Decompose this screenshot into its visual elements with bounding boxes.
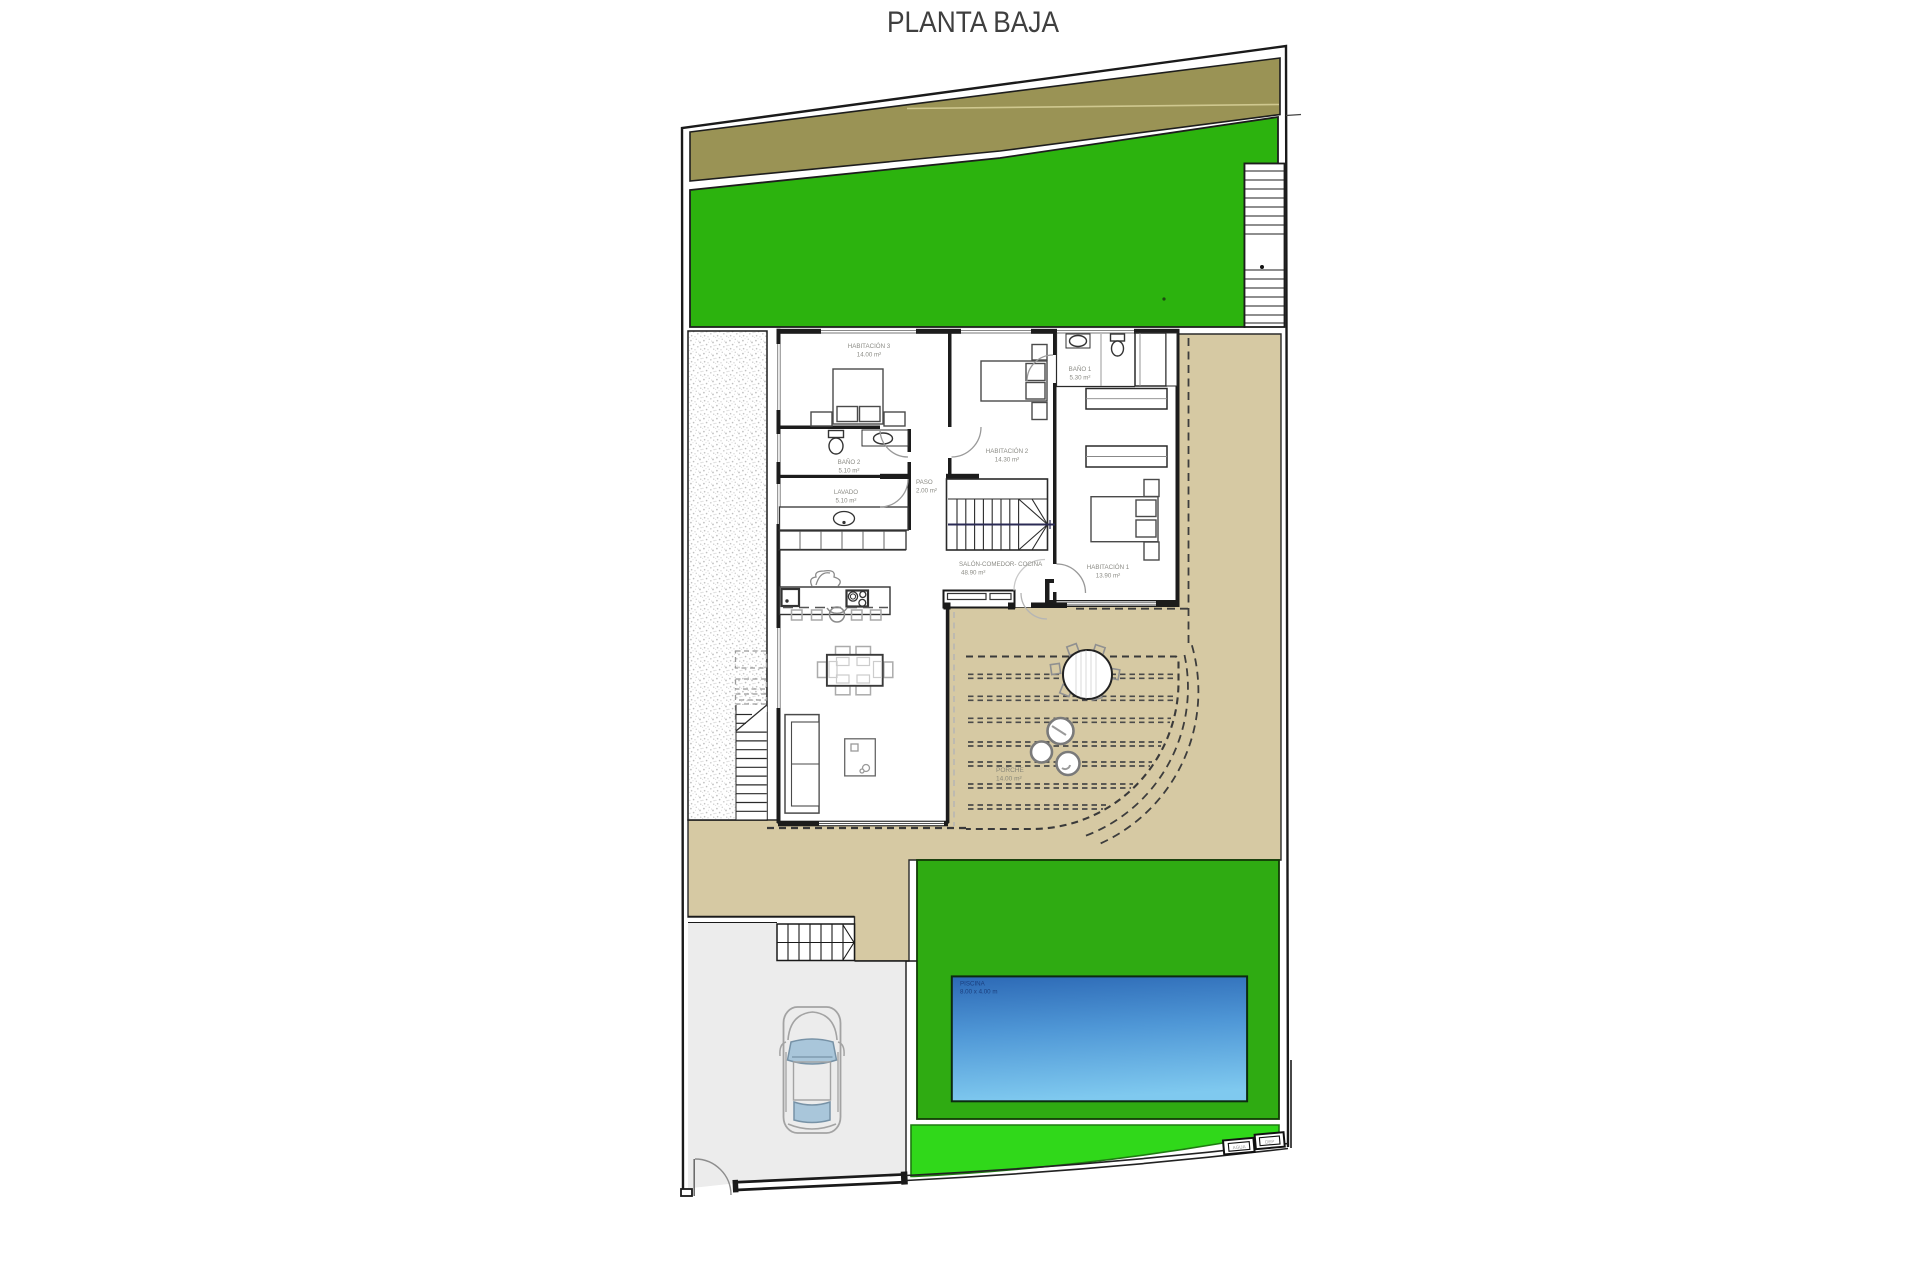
svg-text:2.00 m²: 2.00 m² (916, 488, 937, 495)
svg-text:PLANTA BAJA: PLANTA BAJA (887, 6, 1059, 39)
svg-text:5.10 m²: 5.10 m² (839, 468, 860, 475)
svg-text:DEP: DEP (1265, 1139, 1275, 1145)
svg-text:HABITACIÓN 2: HABITACIÓN 2 (986, 448, 1029, 455)
svg-text:48.90 m²: 48.90 m² (961, 570, 985, 577)
svg-text:BAÑO 2: BAÑO 2 (838, 459, 861, 466)
svg-text:14.30 m²: 14.30 m² (995, 457, 1019, 464)
svg-text:5.30 m²: 5.30 m² (1070, 375, 1091, 382)
svg-text:PASO: PASO (916, 479, 933, 486)
svg-text:LAVADO: LAVADO (834, 489, 858, 496)
svg-text:PISCINA: PISCINA (960, 981, 986, 988)
svg-text:BAÑO 1: BAÑO 1 (1069, 366, 1092, 373)
svg-text:14.00 m²: 14.00 m² (857, 352, 881, 359)
svg-text:8.00 x 4.00 m: 8.00 x 4.00 m (960, 989, 998, 996)
svg-text:5.10 m²: 5.10 m² (836, 498, 857, 505)
svg-text:SALÓN-COMEDOR- COCINA: SALÓN-COMEDOR- COCINA (959, 561, 1043, 568)
svg-text:14.00 m²: 14.00 m² (996, 776, 1022, 783)
svg-text:HABITACIÓN 1: HABITACIÓN 1 (1087, 564, 1130, 571)
svg-text:13.90 m²: 13.90 m² (1096, 573, 1120, 580)
svg-text:HABITACIÓN 3: HABITACIÓN 3 (848, 343, 891, 350)
svg-text:PORCHE: PORCHE (996, 767, 1024, 774)
